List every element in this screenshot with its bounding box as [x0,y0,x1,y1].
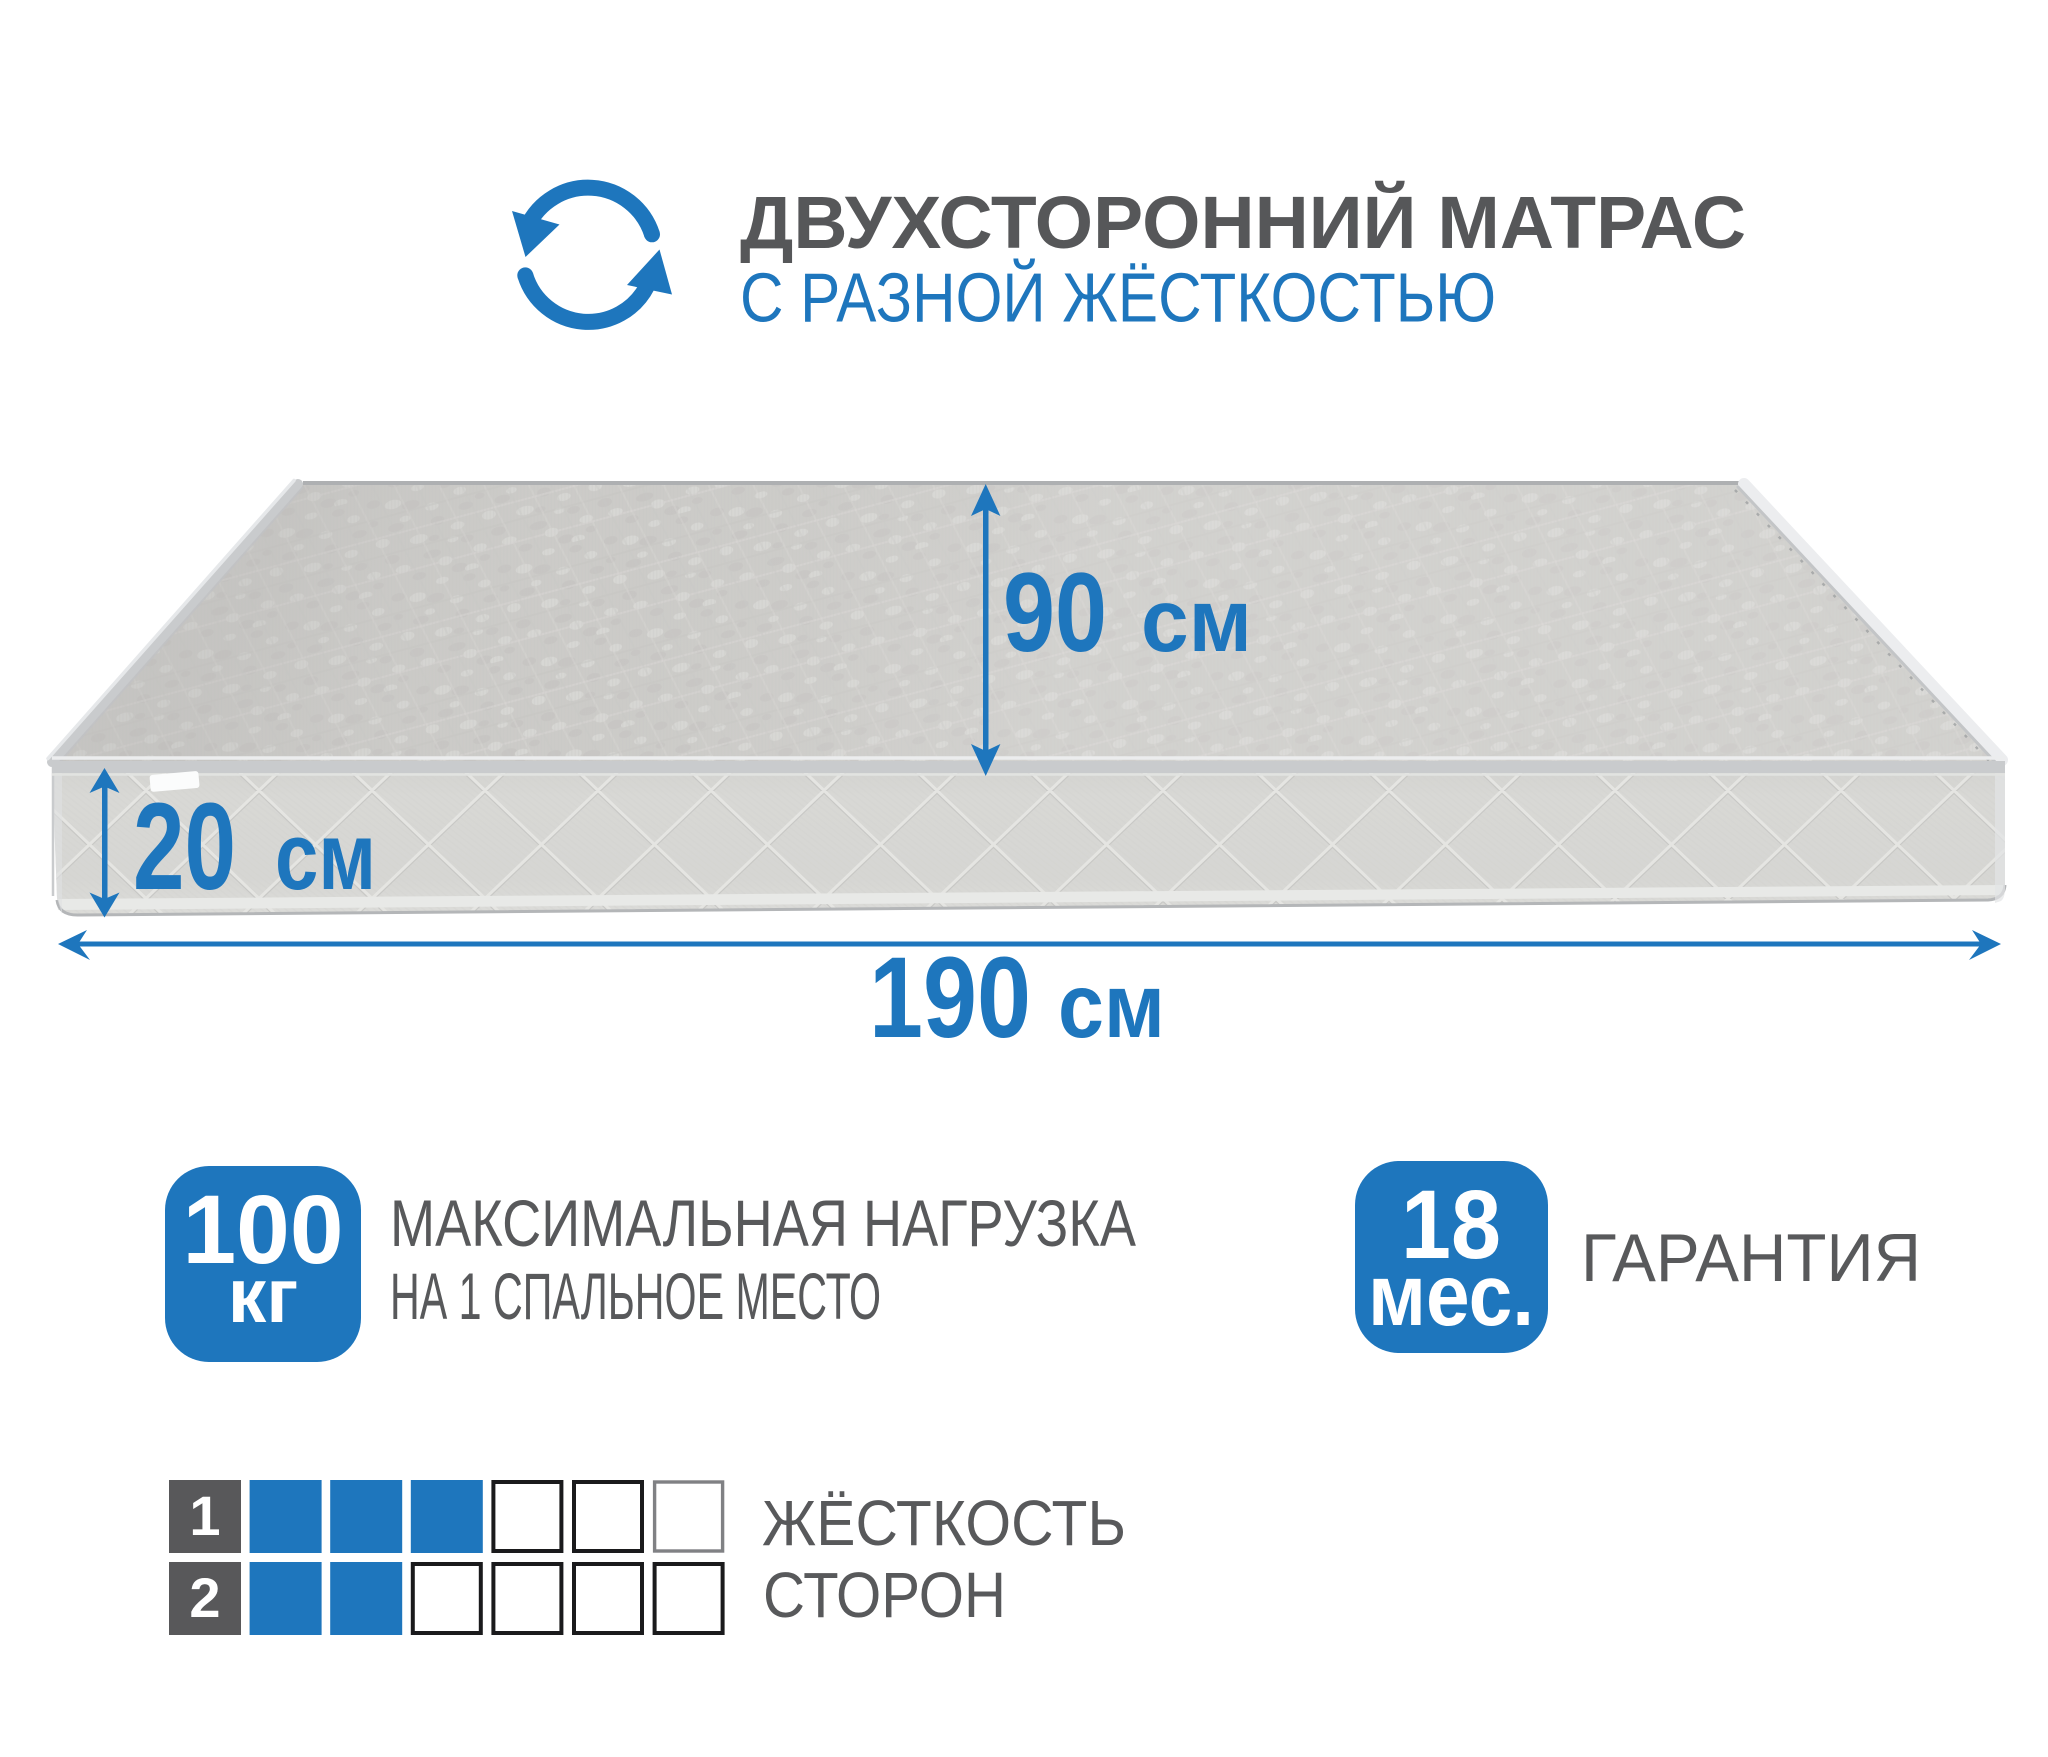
svg-text:мес.: мес. [1368,1247,1534,1344]
svg-text:20: 20 [133,779,236,916]
svg-text:1: 1 [189,1484,220,1547]
svg-text:2: 2 [189,1566,220,1629]
svg-text:МАКСИМАЛЬНАЯ НАГРУЗКА: МАКСИМАЛЬНАЯ НАГРУЗКА [390,1186,1136,1260]
svg-text:кг: кг [228,1253,299,1339]
svg-text:ДВУХСТОРОННИЙ МАТРАС: ДВУХСТОРОННИЙ МАТРАС [740,180,1746,264]
svg-text:90: 90 [1003,550,1107,675]
svg-text:ЖЁСТКОСТЬ: ЖЁСТКОСТЬ [762,1487,1126,1559]
svg-text:см: см [1141,570,1252,670]
svg-text:см: см [1058,956,1165,1057]
svg-text:190: 190 [869,934,1031,1062]
svg-text:см: см [275,803,376,910]
svg-text:НА 1 СПАЛЬНОЕ МЕСТО: НА 1 СПАЛЬНОЕ МЕСТО [390,1259,881,1333]
svg-text:С РАЗНОЙ ЖЁСТКОСТЬЮ: С РАЗНОЙ ЖЁСТКОСТЬЮ [740,258,1496,337]
svg-text:ГАРАНТИЯ: ГАРАНТИЯ [1581,1220,1921,1296]
svg-text:СТОРОН: СТОРОН [763,1559,1006,1631]
